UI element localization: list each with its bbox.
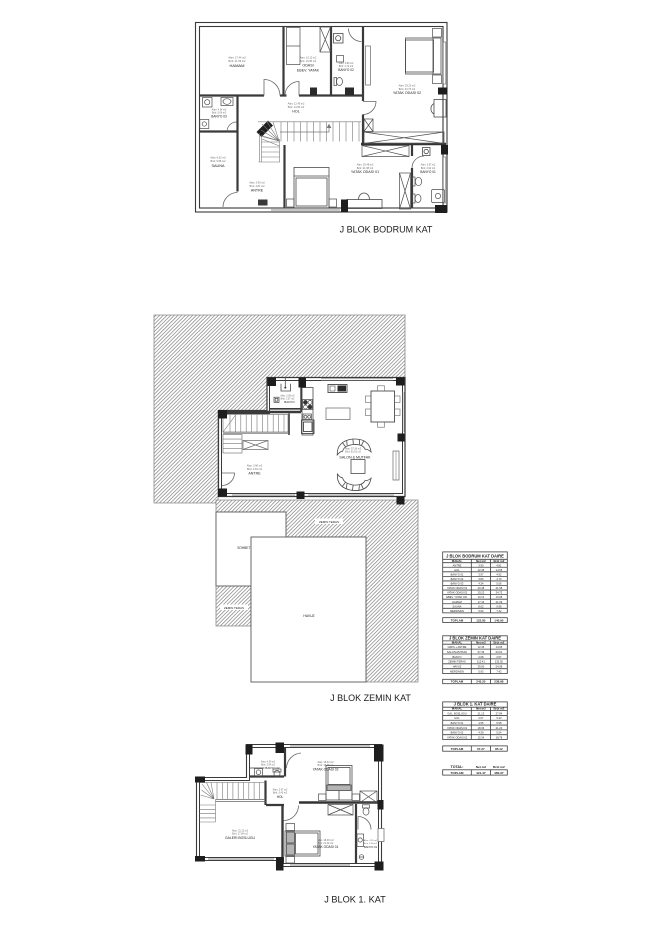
- svg-text:YATAK ODASI 02: YATAK ODASI 02: [313, 768, 339, 772]
- svg-text:3.97: 3.97: [478, 572, 484, 576]
- svg-text:21.09: 21.09: [496, 600, 503, 604]
- svg-text:ZEMIN TERAS: ZEMIN TERAS: [448, 660, 466, 664]
- svg-text:17.44: 17.44: [478, 600, 485, 604]
- svg-text:2.57: 2.57: [496, 655, 502, 659]
- svg-text:BANYO: BANYO: [452, 655, 461, 659]
- svg-text:BANYO 01: BANYO 01: [451, 721, 464, 725]
- svg-text:5.93: 5.93: [478, 669, 484, 673]
- svg-text:HOL: HOL: [454, 568, 460, 572]
- svg-text:Brüt m2: Brüt m2: [493, 640, 504, 644]
- svg-text:BANYO 03: BANYO 03: [211, 115, 227, 119]
- svg-text:BANYO 03: BANYO 03: [451, 582, 464, 586]
- svg-text:GAL. BOSLUGU: GAL. BOSLUGU: [447, 711, 466, 715]
- svg-text:Brüt m2: Brüt m2: [493, 765, 505, 769]
- svg-text:BANYO 02: BANYO 02: [451, 577, 464, 581]
- svg-text:20.48: 20.48: [478, 586, 485, 590]
- svg-text:Net m2: Net m2: [476, 559, 486, 563]
- svg-text:132.92: 132.92: [495, 660, 503, 664]
- svg-text:ANTRE: ANTRE: [248, 472, 261, 476]
- svg-text:Brüt m2: Brüt m2: [493, 707, 504, 711]
- svg-text:5.58: 5.58: [496, 721, 502, 725]
- svg-text:2.08: 2.08: [478, 655, 484, 659]
- svg-text:243.20: 243.20: [476, 680, 486, 684]
- svg-text:Alan: 4.39 m2: Alan: 4.39 m2: [261, 761, 276, 764]
- svg-text:ZEMIN TERAS: ZEMIN TERAS: [319, 520, 339, 524]
- svg-text:YATAK ODASI 01: YATAK ODASI 01: [313, 845, 339, 849]
- svg-text:4.70: 4.70: [496, 577, 502, 581]
- svg-text:14.05: 14.05: [496, 645, 503, 649]
- svg-text:HAVUZ: HAVUZ: [453, 665, 462, 669]
- svg-text:BANYO 01: BANYO 01: [364, 845, 378, 849]
- svg-text:421.47: 421.47: [476, 771, 486, 775]
- svg-text:GALERI BOSLUGU: GALERI BOSLUGU: [225, 836, 256, 840]
- svg-text:12.45: 12.45: [478, 568, 485, 572]
- svg-text:Brüt: 63.91 m2: Brüt: 63.91 m2: [345, 451, 361, 454]
- svg-text:12.45: 12.45: [478, 645, 485, 649]
- svg-text:Brüt: 4.81 m2: Brüt: 4.81 m2: [247, 468, 263, 471]
- svg-text:BANYO 01: BANYO 01: [451, 572, 464, 576]
- svg-text:18.36: 18.36: [478, 726, 485, 730]
- svg-text:8.62: 8.62: [478, 604, 484, 608]
- svg-text:EBEV. YATAK: EBEV. YATAK: [297, 69, 320, 73]
- svg-text:YATAK ODASI 02: YATAK ODASI 02: [447, 591, 468, 595]
- svg-text:Brüt: 5.58 m2: Brüt: 5.58 m2: [364, 842, 378, 845]
- svg-text:YATAK ODASI 01: YATAK ODASI 01: [351, 170, 379, 174]
- svg-text:4.92: 4.92: [496, 572, 502, 576]
- svg-text:ANTRE: ANTRE: [251, 189, 264, 193]
- svg-text:85.12: 85.12: [495, 747, 503, 751]
- svg-text:5.93: 5.93: [478, 609, 484, 613]
- svg-text:Net m2: Net m2: [476, 765, 487, 769]
- svg-text:TOPLAM: TOPLAM: [451, 747, 464, 751]
- svg-text:5.06: 5.06: [496, 582, 502, 586]
- svg-text:MAHAL: MAHAL: [452, 640, 463, 644]
- svg-text:112.41: 112.41: [477, 660, 485, 664]
- svg-text:140.90: 140.90: [494, 618, 504, 622]
- svg-text:7.42: 7.42: [496, 609, 502, 613]
- svg-text:HAMAM: HAMAM: [230, 63, 245, 68]
- svg-text:HOL: HOL: [277, 795, 284, 799]
- svg-text:TOPLAM: TOPLAM: [451, 618, 464, 622]
- svg-text:Brüt: 13.08 m2: Brüt: 13.08 m2: [300, 60, 317, 63]
- svg-text:9.98: 9.98: [496, 604, 502, 608]
- svg-text:63.91: 63.91: [496, 650, 503, 654]
- svg-text:EBEV. YATAK OD.: EBEV. YATAK OD.: [446, 595, 468, 599]
- svg-text:18.78: 18.78: [496, 735, 503, 739]
- svg-text:HAMAM: HAMAM: [452, 600, 462, 604]
- svg-text:238.98: 238.98: [494, 680, 504, 684]
- svg-text:4.55: 4.55: [478, 721, 484, 725]
- svg-text:BANYO 02: BANYO 02: [451, 731, 464, 735]
- svg-text:5.54: 5.54: [496, 731, 502, 735]
- svg-text:67.27: 67.27: [477, 747, 485, 751]
- svg-text:MERDIVEN: MERDIVEN: [450, 669, 464, 673]
- svg-text:YATAK ODASI 01: YATAK ODASI 01: [447, 726, 468, 730]
- svg-text:ANTRE: ANTRE: [453, 563, 462, 567]
- svg-text:480.37: 480.37: [494, 771, 504, 775]
- svg-text:4.34: 4.34: [478, 582, 484, 586]
- svg-text:HOL: HOL: [454, 716, 460, 720]
- svg-text:TOTAL:: TOTAL:: [451, 765, 464, 769]
- svg-text:SAUNA: SAUNA: [453, 604, 462, 608]
- svg-text:7.42: 7.42: [496, 669, 502, 673]
- svg-text:39.00: 39.00: [478, 665, 485, 669]
- svg-text:29.22: 29.22: [478, 591, 485, 595]
- svg-text:10.12: 10.12: [478, 595, 485, 599]
- svg-text:Alan: 2.08 m2: Alan: 2.08 m2: [280, 395, 295, 398]
- svg-text:BANYO 01: BANYO 01: [420, 170, 436, 174]
- svg-text:3.43: 3.43: [496, 716, 502, 720]
- svg-text:YATAK ODASI 01: YATAK ODASI 01: [447, 586, 468, 590]
- svg-text:HOL: HOL: [292, 110, 299, 114]
- svg-text:BANYO: BANYO: [284, 400, 295, 404]
- svg-text:54.08: 54.08: [496, 665, 503, 669]
- svg-text:Brüt m2: Brüt m2: [493, 559, 504, 563]
- svg-text:Net m2: Net m2: [476, 640, 486, 644]
- svg-text:15.34: 15.34: [478, 735, 485, 739]
- svg-text:Alan: 4.55 m2: Alan: 4.55 m2: [364, 839, 378, 842]
- svg-text:57.36: 57.36: [478, 650, 485, 654]
- svg-text:J BLOK BODRUM KAT: J BLOK BODRUM KAT: [340, 225, 433, 235]
- svg-text:13.08: 13.08: [496, 595, 503, 599]
- svg-text:J BLOK 1. KAT: J BLOK 1. KAT: [324, 895, 386, 905]
- svg-text:Brüt: 14.05 m2: Brüt: 14.05 m2: [288, 106, 305, 109]
- svg-text:SAUNA: SAUNA: [211, 164, 225, 168]
- svg-text:YATAK ODASI 02: YATAK ODASI 02: [447, 735, 468, 739]
- svg-text:ZEMIN TERAS: ZEMIN TERAS: [224, 606, 244, 610]
- svg-text:HAVUZ: HAVUZ: [303, 614, 314, 618]
- svg-text:3.90: 3.90: [478, 563, 484, 567]
- svg-text:TOPLAM: TOPLAM: [450, 771, 463, 775]
- svg-text:SALON & MUTFAK: SALON & MUTFAK: [339, 456, 371, 460]
- svg-text:34.73: 34.73: [496, 591, 503, 595]
- svg-text:21.13: 21.13: [478, 711, 485, 715]
- svg-text:3.80: 3.80: [478, 577, 484, 581]
- svg-text:122.80: 122.80: [476, 618, 486, 622]
- svg-text:4.81: 4.81: [496, 563, 502, 567]
- svg-text:21.58: 21.58: [496, 586, 503, 590]
- svg-text:21.20: 21.20: [496, 726, 503, 730]
- svg-text:Net m2: Net m2: [476, 707, 486, 711]
- svg-text:Brüt: 4.81 m2: Brüt: 4.81 m2: [249, 185, 265, 188]
- svg-text:MAHAL: MAHAL: [452, 707, 463, 711]
- svg-text:YATAK ODASI 02: YATAK ODASI 02: [393, 91, 421, 95]
- svg-text:MERDIVEN: MERDIVEN: [450, 609, 464, 613]
- svg-text:2.67: 2.67: [478, 716, 484, 720]
- svg-text:MAHAL: MAHAL: [452, 559, 463, 563]
- svg-text:BANYO 02: BANYO 02: [265, 766, 280, 770]
- svg-text:27.84: 27.84: [496, 711, 503, 715]
- svg-text:BANYO 02: BANYO 02: [338, 68, 354, 72]
- svg-text:Brüt: 9.98 m2: Brüt: 9.98 m2: [210, 160, 226, 163]
- svg-text:SALON-MUTFAK: SALON-MUTFAK: [447, 650, 467, 654]
- svg-text:TOPLAM: TOPLAM: [451, 680, 464, 684]
- svg-text:GIRIS + ANTRE: GIRIS + ANTRE: [448, 645, 467, 649]
- svg-text:4.39: 4.39: [478, 731, 484, 735]
- svg-text:ODASI: ODASI: [302, 64, 313, 68]
- svg-text:14.05: 14.05: [496, 568, 503, 572]
- svg-text:J BLOK ZEMIN KAT: J BLOK ZEMIN KAT: [330, 693, 411, 703]
